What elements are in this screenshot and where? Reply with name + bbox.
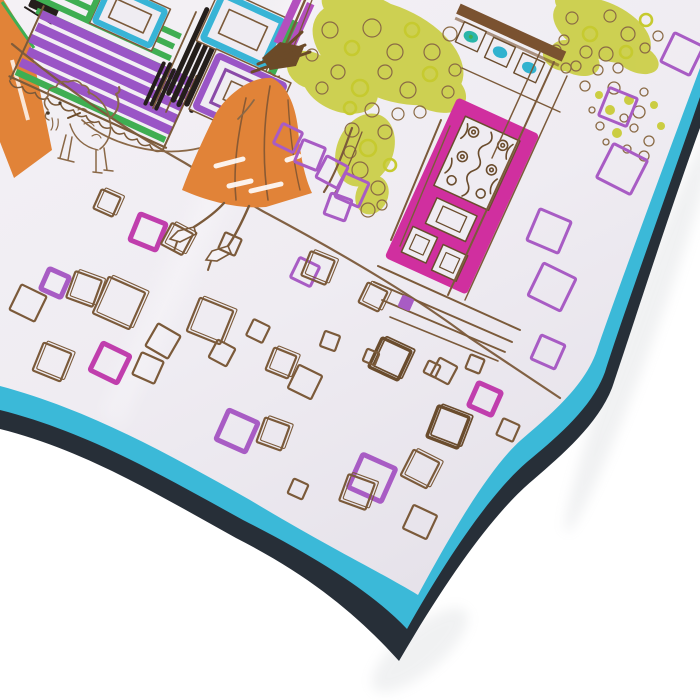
scarf-photo xyxy=(0,0,700,700)
dog-eye xyxy=(58,101,61,104)
product-photo: Product photo of a square silk scarf lai… xyxy=(0,0,700,700)
dog-nose xyxy=(46,111,50,115)
